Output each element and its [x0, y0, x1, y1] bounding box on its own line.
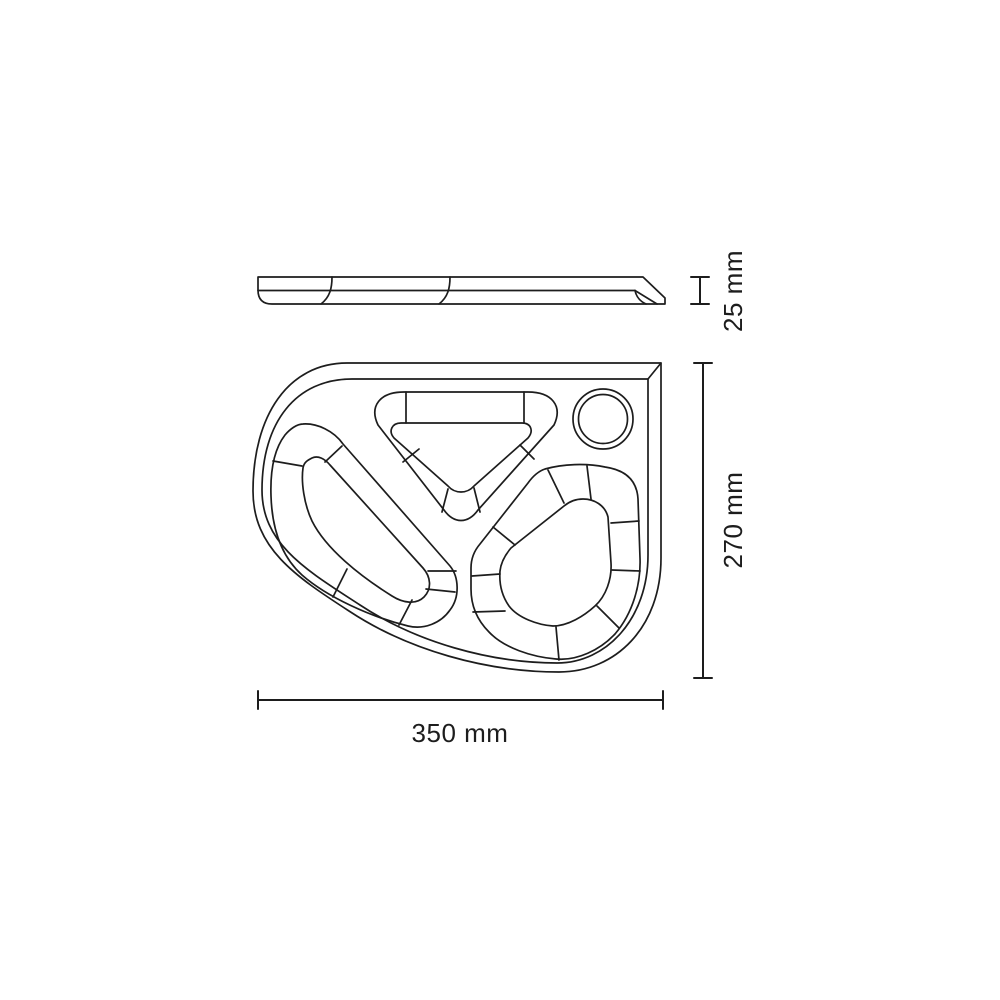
width-dimension-label: 350 mm	[412, 718, 509, 748]
round-hole-outer-circle	[573, 389, 633, 449]
thickness-dimension: 25 mm	[691, 250, 748, 332]
right-slot	[471, 465, 640, 660]
plate-outline	[253, 363, 661, 672]
height-dimension-label: 270 mm	[718, 472, 748, 569]
top-slot	[375, 392, 557, 521]
side-profile-view	[258, 277, 665, 304]
left-slot-outer-boundary	[271, 424, 457, 627]
corner-chamfer-line	[648, 363, 661, 379]
plan-view	[253, 363, 661, 672]
left-slot-dividers	[273, 446, 456, 625]
top-slot-island	[391, 423, 531, 492]
top-slot-dividers	[403, 392, 534, 512]
plate-inner-edge	[262, 379, 648, 663]
technical-drawing: 25 mm	[0, 0, 1000, 1000]
left-slot	[271, 424, 457, 627]
technical-drawing-canvas: 25 mm	[0, 0, 1000, 1000]
side-end-fillet	[635, 291, 646, 305]
width-dimension-line	[258, 691, 663, 709]
right-slot-island	[500, 499, 611, 626]
height-dimension: 270 mm	[694, 363, 748, 678]
thickness-dimension-label: 25 mm	[718, 250, 748, 332]
thickness-dimension-line	[691, 277, 709, 304]
height-dimension-line	[694, 363, 712, 678]
round-hole	[573, 389, 633, 449]
round-hole-inner-circle	[579, 395, 628, 444]
top-slot-outer-boundary	[375, 392, 557, 521]
right-slot-dividers	[472, 466, 640, 660]
width-dimension: 350 mm	[258, 691, 663, 748]
